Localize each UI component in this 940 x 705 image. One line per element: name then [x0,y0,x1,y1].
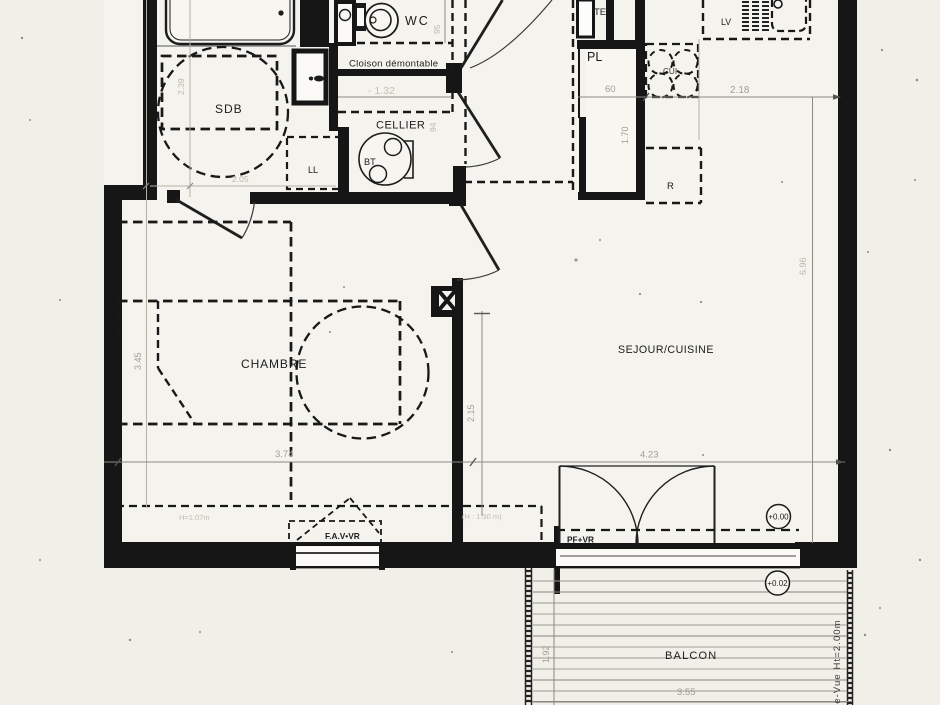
svg-text:PL: PL [587,50,602,64]
svg-text:F.A.V•VR: F.A.V•VR [325,531,360,541]
svg-text:LV: LV [721,17,731,27]
svg-text:H=1.07m: H=1.07m [179,513,210,522]
svg-text:R: R [667,181,674,192]
svg-text:- 1.32: - 1.32 [368,85,395,97]
svg-text:6.96: 6.96 [798,257,808,275]
svg-text:SEJOUR/CUISINE: SEJOUR/CUISINE [618,344,714,356]
svg-text:(H : 1.30 m): (H : 1.30 m) [462,512,502,521]
svg-text:1.92: 1.92 [541,645,551,663]
svg-text:CELLIER: CELLIER [376,120,425,132]
svg-text:2.39: 2.39 [176,78,186,95]
svg-text:94: 94 [428,122,438,132]
svg-text:CHAMBRE: CHAMBRE [241,357,307,371]
svg-text:BT: BT [364,157,376,167]
svg-text:BALCON: BALCON [665,650,717,662]
svg-text:WC: WC [405,14,430,28]
svg-text:CUI: CUI [663,67,677,76]
svg-text:2.15: 2.15 [466,404,476,422]
svg-text:LL: LL [308,165,318,175]
svg-text:TE: TE [594,7,606,18]
svg-text:SDB: SDB [215,102,243,116]
svg-text:4.23: 4.23 [640,450,659,461]
svg-text:re-Vue Ht=2.00m: re-Vue Ht=2.00m [832,619,843,705]
svg-text:Cloison démontable: Cloison démontable [349,59,438,70]
svg-text:95: 95 [432,24,442,34]
svg-text:3.74: 3.74 [275,449,294,460]
svg-text:+0.02: +0.02 [767,579,788,588]
svg-text:3.45: 3.45 [133,352,143,370]
svg-text:60: 60 [605,84,616,95]
svg-text:2.05: 2.05 [232,174,249,184]
svg-text:1.70: 1.70 [620,126,630,144]
svg-text:2.18: 2.18 [730,85,750,96]
svg-text:+0.00: +0.00 [768,513,789,522]
svg-text:3.55: 3.55 [677,687,696,698]
svg-text:PF+VR: PF+VR [567,535,594,545]
